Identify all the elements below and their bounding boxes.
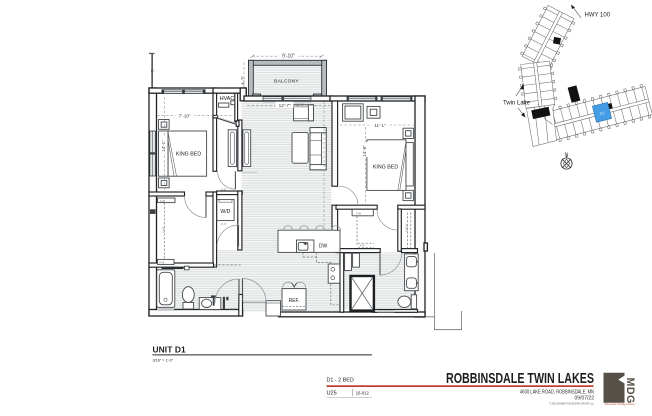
svg-text:4'-0": 4'-0"	[360, 244, 365, 248]
svg-text:BALCONY: BALCONY	[274, 78, 299, 84]
svg-text:N: N	[565, 153, 569, 159]
svg-text:LINEN: LINEN	[405, 224, 409, 232]
svg-text:4'-7": 4'-7"	[241, 76, 246, 86]
svg-text:4'-0": 4'-0"	[221, 222, 227, 226]
svg-text:KING BED: KING BED	[373, 164, 398, 170]
svg-text:7'-10": 7'-10"	[179, 114, 192, 120]
svg-text:KING BED: KING BED	[176, 151, 201, 157]
svg-text:11'-1": 11'-1"	[374, 123, 386, 128]
svg-text:F+B: F+B	[160, 199, 165, 203]
svg-text:F+B: F+B	[356, 211, 361, 215]
svg-text:UNIT D1: UNIT D1	[153, 344, 187, 354]
svg-text:© 2022 MOMENTUM DESIGN GROUP L: © 2022 MOMENTUM DESIGN GROUP LLC	[549, 401, 595, 405]
svg-text:Twin Lake: Twin Lake	[503, 101, 531, 107]
svg-text:CLR: CLR	[230, 307, 236, 311]
svg-text:3/16" = 1'-0": 3/16" = 1'-0"	[153, 359, 174, 363]
svg-text:DW: DW	[319, 243, 328, 249]
svg-text:W/D: W/D	[220, 209, 230, 215]
svg-text:D1 - 2 BED: D1 - 2 BED	[327, 378, 354, 384]
svg-text:9'-10": 9'-10"	[282, 54, 295, 60]
svg-text:14'-8": 14'-8"	[362, 145, 367, 157]
svg-text:5'-8": 5'-8"	[221, 188, 227, 192]
svg-text:F+B: F+B	[160, 260, 165, 264]
svg-text:Momentum Design Group: Momentum Design Group	[605, 402, 635, 406]
svg-text:14'-1": 14'-1"	[161, 140, 166, 152]
svg-text:ROBBINSDALE TWIN LAKES: ROBBINSDALE TWIN LAKES	[446, 371, 594, 387]
svg-text:REF.: REF.	[289, 298, 300, 304]
svg-text:MDG: MDG	[624, 378, 636, 404]
svg-text:D+R: D+R	[162, 227, 166, 232]
svg-text:16-012: 16-012	[356, 390, 370, 395]
svg-text:HWY 100: HWY 100	[585, 13, 611, 19]
svg-text:x 18'-0": x 18'-0"	[293, 103, 304, 107]
svg-text:12'-7": 12'-7"	[279, 103, 292, 109]
svg-text:U25: U25	[327, 391, 337, 397]
svg-text:HVAC: HVAC	[220, 96, 235, 102]
